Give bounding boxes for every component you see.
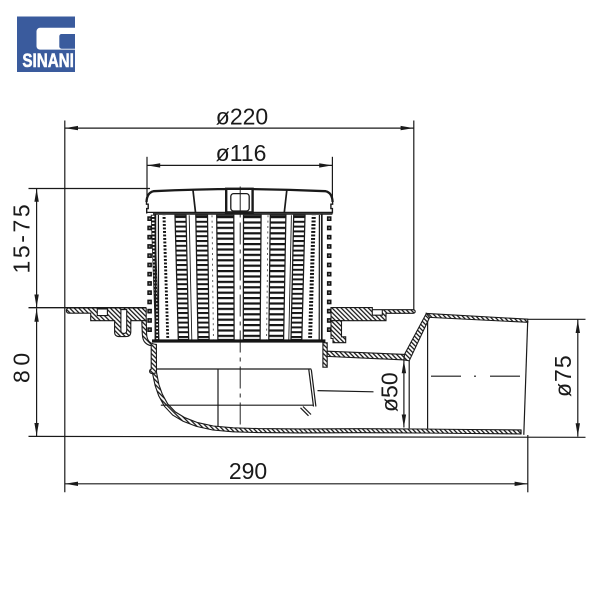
svg-text:ø50: ø50 bbox=[376, 372, 402, 412]
svg-text:80: 80 bbox=[9, 348, 35, 383]
svg-text:15-75: 15-75 bbox=[8, 202, 34, 274]
svg-text:290: 290 bbox=[229, 458, 267, 484]
svg-text:ø220: ø220 bbox=[216, 104, 268, 130]
svg-text:SINANI: SINANI bbox=[22, 49, 73, 71]
svg-text:ø75: ø75 bbox=[550, 354, 576, 397]
svg-text:ø116: ø116 bbox=[216, 140, 267, 166]
